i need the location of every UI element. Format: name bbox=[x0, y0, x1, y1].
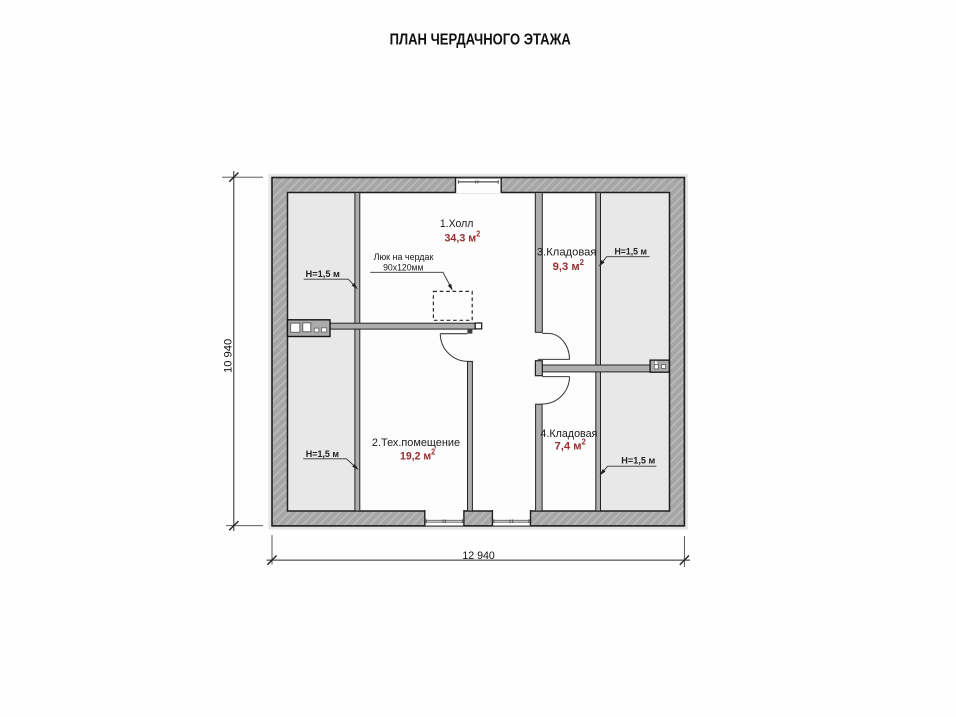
svg-text:ПЛАН ЧЕРДАЧНОГО ЭТАЖА: ПЛАН ЧЕРДАЧНОГО ЭТАЖА bbox=[390, 32, 572, 49]
svg-text:4.Кладовая: 4.Кладовая bbox=[540, 428, 597, 440]
svg-text:Н=1,5 м: Н=1,5 м bbox=[306, 269, 341, 279]
svg-text:34,3 м2: 34,3 м2 bbox=[445, 229, 481, 244]
svg-text:Н=1,5 м: Н=1,5 м bbox=[306, 449, 339, 459]
svg-text:3.Кладовая: 3.Кладовая bbox=[537, 246, 597, 258]
svg-text:90х120мм: 90х120мм bbox=[383, 262, 423, 272]
svg-text:Люк на чердак: Люк на чердак bbox=[374, 252, 435, 262]
svg-text:10 940: 10 940 bbox=[222, 339, 234, 373]
svg-text:12 940: 12 940 bbox=[462, 550, 495, 562]
svg-text:19,2 м2: 19,2 м2 bbox=[400, 447, 436, 462]
svg-text:1.Холл: 1.Холл bbox=[440, 218, 474, 230]
svg-text:2.Тех.помещение: 2.Тех.помещение bbox=[372, 437, 460, 449]
svg-text:Н=1,5 м: Н=1,5 м bbox=[615, 246, 648, 256]
svg-text:Н=1,5 м: Н=1,5 м bbox=[621, 456, 655, 466]
